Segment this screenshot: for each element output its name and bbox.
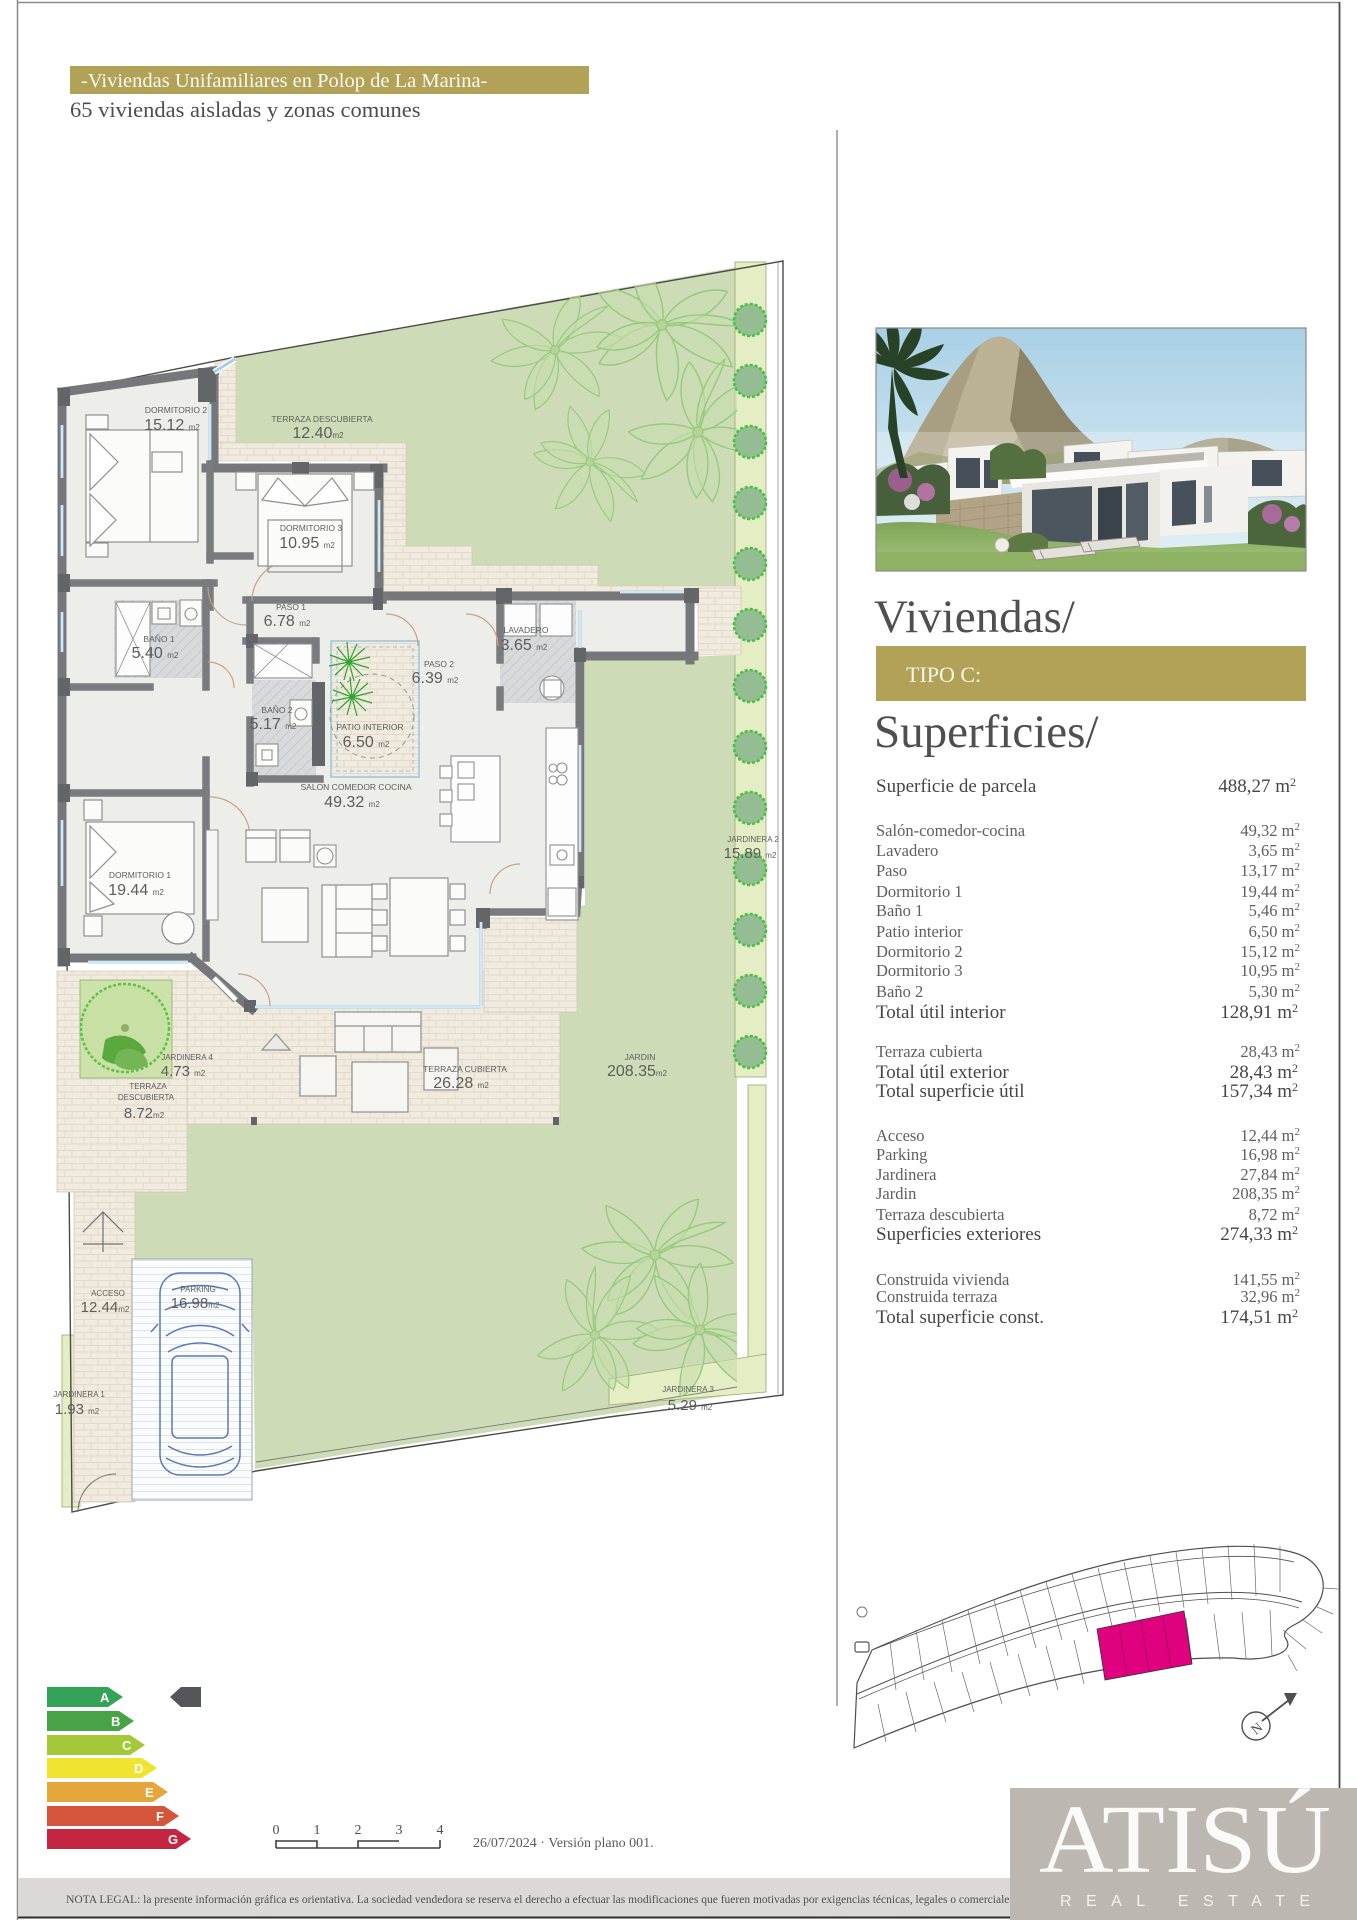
- svg-text:PATIO INTERIOR: PATIO INTERIOR: [336, 722, 403, 732]
- svg-text:JARDIN: JARDIN: [625, 1052, 656, 1062]
- svg-text:10,95 m2: 10,95 m2: [1240, 961, 1300, 980]
- svg-text:DORMITORIO 1: DORMITORIO 1: [109, 870, 171, 880]
- svg-text:5,46 m2: 5,46 m2: [1249, 901, 1300, 920]
- svg-text:ATISÚ: ATISÚ: [1039, 1786, 1331, 1893]
- svg-text:PASO 2: PASO 2: [424, 659, 454, 669]
- svg-text:28,43 m2: 28,43 m2: [1240, 1042, 1300, 1061]
- svg-text:49,32 m2: 49,32 m2: [1240, 821, 1300, 840]
- svg-text:Total superficie útil: Total superficie útil: [876, 1081, 1025, 1102]
- svg-text:G: G: [168, 1832, 178, 1847]
- svg-text:A: A: [100, 1690, 110, 1705]
- svg-text:NOTA LEGAL: la presente inform: NOTA LEGAL: la presente información gráf…: [66, 1894, 1014, 1906]
- svg-text:65 viviendas aisladas y zonas: 65 viviendas aisladas y zonas comunes: [70, 97, 421, 122]
- svg-text:DORMITORIO 3: DORMITORIO 3: [280, 523, 342, 533]
- svg-text:28,43 m2: 28,43 m2: [1230, 1061, 1298, 1083]
- svg-text:F: F: [156, 1809, 164, 1824]
- svg-text:2: 2: [355, 1823, 362, 1838]
- svg-text:DESCUBIERTA: DESCUBIERTA: [118, 1093, 175, 1102]
- svg-text:PARKING: PARKING: [180, 1285, 215, 1294]
- svg-text:Jardin: Jardin: [876, 1184, 916, 1203]
- svg-text:Lavadero: Lavadero: [876, 841, 938, 860]
- svg-text:BAÑO 2: BAÑO 2: [261, 705, 292, 715]
- svg-text:26/07/2024 · Versión plano 001: 26/07/2024 · Versión plano 001.: [473, 1836, 654, 1851]
- svg-text:3,65 m2: 3,65 m2: [1249, 841, 1300, 860]
- svg-text:JARDINERA 4: JARDINERA 4: [161, 1053, 213, 1062]
- svg-text:Paso: Paso: [876, 861, 907, 880]
- svg-text:Total superficie const.: Total superficie const.: [876, 1307, 1044, 1328]
- svg-text:BAÑO 1: BAÑO 1: [143, 634, 174, 644]
- svg-text:Patio interior: Patio interior: [876, 922, 963, 941]
- svg-text:Dormitorio 2: Dormitorio 2: [876, 942, 963, 961]
- svg-text:TERRAZA DESCUBIERTA: TERRAZA DESCUBIERTA: [271, 414, 373, 424]
- svg-text:27,84 m2: 27,84 m2: [1240, 1165, 1300, 1184]
- svg-text:Total útil exterior: Total útil exterior: [876, 1062, 1009, 1083]
- svg-text:TERRAZA: TERRAZA: [129, 1082, 167, 1091]
- svg-text:Baño 1: Baño 1: [876, 901, 923, 920]
- svg-text:LAVADERO: LAVADERO: [503, 625, 548, 635]
- svg-text:-Viviendas Unifamiliares en Po: -Viviendas Unifamiliares en Polop de La …: [81, 70, 488, 92]
- svg-text:JARDINERA 3: JARDINERA 3: [662, 1385, 714, 1394]
- svg-text:Dormitorio 3: Dormitorio 3: [876, 961, 963, 980]
- svg-text:Viviendas/: Viviendas/: [874, 591, 1076, 643]
- svg-text:Terraza cubierta: Terraza cubierta: [876, 1042, 983, 1061]
- svg-text:Jardinera: Jardinera: [876, 1165, 937, 1184]
- svg-text:TIPO C:: TIPO C:: [906, 662, 981, 687]
- svg-text:4: 4: [437, 1823, 444, 1838]
- svg-text:Acceso: Acceso: [876, 1126, 925, 1145]
- svg-text:174,51 m2: 174,51 m2: [1220, 1306, 1298, 1328]
- svg-text:274,33 m2: 274,33 m2: [1220, 1223, 1298, 1245]
- svg-text:12,44 m2: 12,44 m2: [1240, 1126, 1300, 1145]
- svg-text:Terraza descubierta: Terraza descubierta: [876, 1205, 1005, 1224]
- svg-text:C: C: [122, 1738, 132, 1753]
- svg-text:DORMITORIO 2: DORMITORIO 2: [145, 405, 207, 415]
- svg-text:B: B: [111, 1714, 120, 1729]
- svg-text:Baño 2: Baño 2: [876, 982, 923, 1001]
- svg-text:13,17 m2: 13,17 m2: [1240, 861, 1300, 880]
- svg-text:JARDINERA 2: JARDINERA 2: [727, 835, 779, 844]
- svg-text:157,34 m2: 157,34 m2: [1220, 1080, 1298, 1102]
- svg-text:5,30 m2: 5,30 m2: [1249, 982, 1300, 1001]
- svg-text:Parking: Parking: [876, 1145, 927, 1164]
- svg-text:D: D: [134, 1761, 143, 1776]
- svg-text:32,96 m2: 32,96 m2: [1240, 1287, 1300, 1306]
- svg-text:ACCESO: ACCESO: [91, 1289, 125, 1298]
- svg-text:Superficies/: Superficies/: [874, 706, 1099, 758]
- svg-text:19,44 m2: 19,44 m2: [1240, 882, 1300, 901]
- svg-text:SALON COMEDOR COCINA: SALON COMEDOR COCINA: [301, 782, 412, 792]
- svg-text:208,35 m2: 208,35 m2: [1232, 1184, 1300, 1203]
- svg-text:128,91 m2: 128,91 m2: [1220, 1001, 1298, 1023]
- svg-text:6,50 m2: 6,50 m2: [1249, 922, 1300, 941]
- svg-text:Total útil interior: Total útil interior: [876, 1002, 1006, 1023]
- svg-text:JARDINERA 1: JARDINERA 1: [53, 1390, 105, 1399]
- svg-text:3: 3: [396, 1823, 403, 1838]
- svg-text:1: 1: [314, 1823, 321, 1838]
- svg-text:8,72 m2: 8,72 m2: [1249, 1205, 1300, 1224]
- svg-text:Salón-comedor-cocina: Salón-comedor-cocina: [876, 821, 1026, 840]
- svg-text:PASO 1: PASO 1: [276, 602, 306, 612]
- svg-text:488,27 m2: 488,27 m2: [1218, 775, 1296, 797]
- svg-text:16,98 m2: 16,98 m2: [1240, 1145, 1300, 1164]
- svg-text:Superficies exteriores: Superficies exteriores: [876, 1224, 1041, 1245]
- svg-text:E: E: [145, 1785, 154, 1800]
- svg-text:0: 0: [273, 1823, 280, 1838]
- svg-text:Dormitorio 1: Dormitorio 1: [876, 882, 963, 901]
- svg-text:Construida terraza: Construida terraza: [876, 1287, 998, 1306]
- svg-text:15,12 m2: 15,12 m2: [1240, 942, 1300, 961]
- svg-text:TERRAZA CUBIERTA: TERRAZA CUBIERTA: [423, 1064, 507, 1074]
- svg-text:Superficie de parcela: Superficie de parcela: [876, 776, 1037, 797]
